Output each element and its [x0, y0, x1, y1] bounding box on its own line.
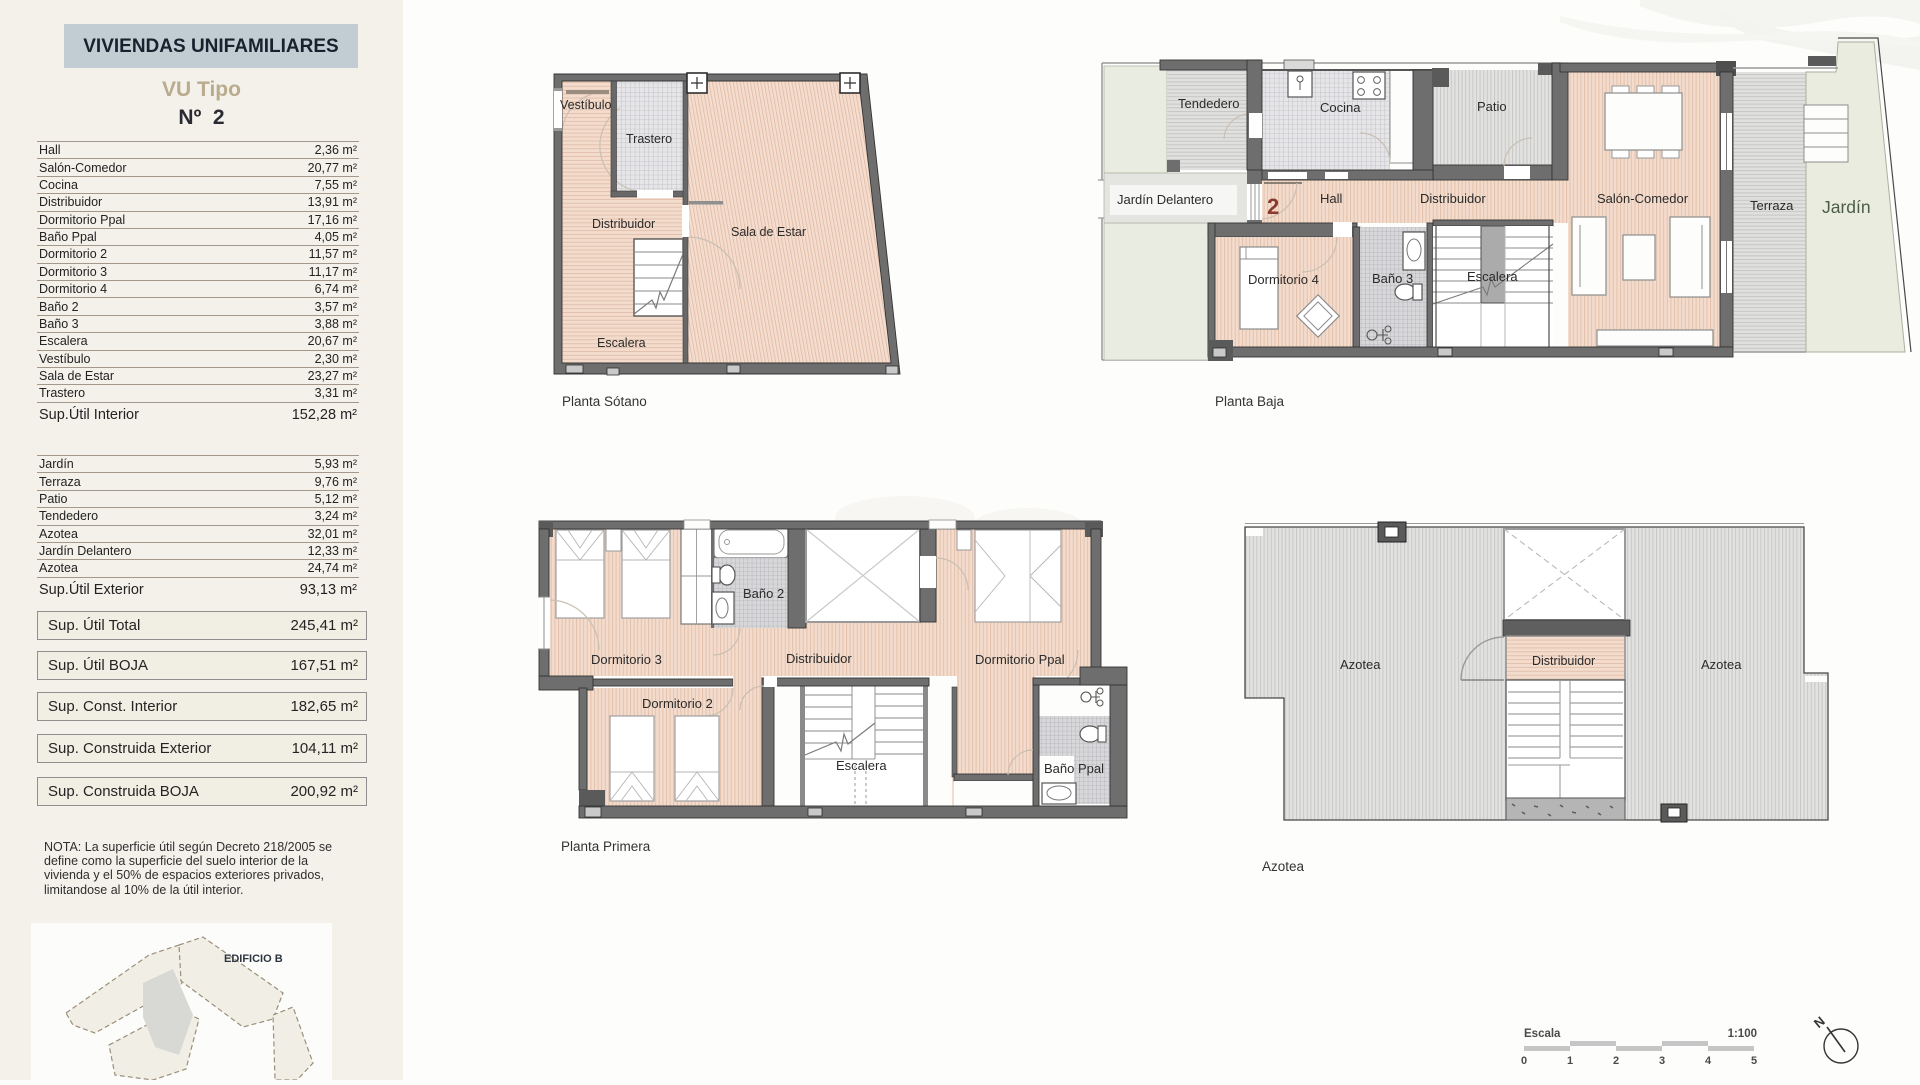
svg-text:Azotea: Azotea — [1340, 657, 1381, 672]
svg-text:Escala: Escala — [1524, 1028, 1561, 1040]
svg-text:Azotea: Azotea — [1262, 859, 1305, 874]
svg-text:Distribuidor: Distribuidor — [786, 651, 852, 666]
svg-text:1:100: 1:100 — [1728, 1028, 1757, 1040]
svg-text:5: 5 — [1751, 1055, 1757, 1067]
svg-text:Baño 2: Baño 2 — [743, 586, 784, 601]
svg-text:Baño 3: Baño 3 — [1372, 271, 1413, 286]
svg-text:Salón-Comedor: Salón-Comedor — [1597, 191, 1689, 206]
svg-text:Dormitorio 2: Dormitorio 2 — [642, 696, 713, 711]
svg-text:Escalera: Escalera — [1467, 269, 1518, 284]
svg-text:Distribuidor: Distribuidor — [592, 217, 655, 231]
svg-text:3: 3 — [1659, 1055, 1665, 1067]
svg-text:Sala de Estar: Sala de Estar — [731, 225, 806, 239]
svg-text:Dormitorio 3: Dormitorio 3 — [591, 652, 662, 667]
svg-text:Distribuidor: Distribuidor — [1532, 654, 1595, 668]
svg-text:Cocina: Cocina — [1320, 100, 1361, 115]
svg-text:Planta Primera: Planta Primera — [561, 839, 651, 854]
svg-text:4: 4 — [1705, 1055, 1712, 1067]
svg-text:Hall: Hall — [1320, 191, 1343, 206]
svg-text:Distribuidor: Distribuidor — [1420, 191, 1486, 206]
svg-text:2: 2 — [1613, 1055, 1619, 1067]
svg-text:Escalera: Escalera — [597, 336, 646, 350]
svg-text:Dormitorio 4: Dormitorio 4 — [1248, 272, 1319, 287]
svg-text:2: 2 — [1267, 194, 1279, 219]
svg-text:1: 1 — [1567, 1055, 1573, 1067]
svg-text:Patio: Patio — [1477, 99, 1507, 114]
svg-text:0: 0 — [1521, 1055, 1527, 1067]
svg-text:Jardín Delantero: Jardín Delantero — [1117, 192, 1213, 207]
svg-text:Jardín: Jardín — [1822, 197, 1871, 217]
svg-text:Trastero: Trastero — [626, 132, 672, 146]
svg-text:Planta Baja: Planta Baja — [1215, 394, 1285, 409]
svg-text:Azotea: Azotea — [1701, 657, 1742, 672]
svg-text:Planta Sótano: Planta Sótano — [562, 394, 647, 409]
svg-text:Dormitorio Ppal: Dormitorio Ppal — [975, 652, 1065, 667]
svg-text:Terraza: Terraza — [1750, 198, 1794, 213]
svg-text:Escalera: Escalera — [836, 758, 887, 773]
svg-text:Vestíbulo: Vestíbulo — [560, 98, 611, 112]
svg-text:N: N — [1811, 1013, 1828, 1031]
svg-text:Baño Ppal: Baño Ppal — [1044, 761, 1104, 776]
svg-text:Tendedero: Tendedero — [1178, 96, 1239, 111]
